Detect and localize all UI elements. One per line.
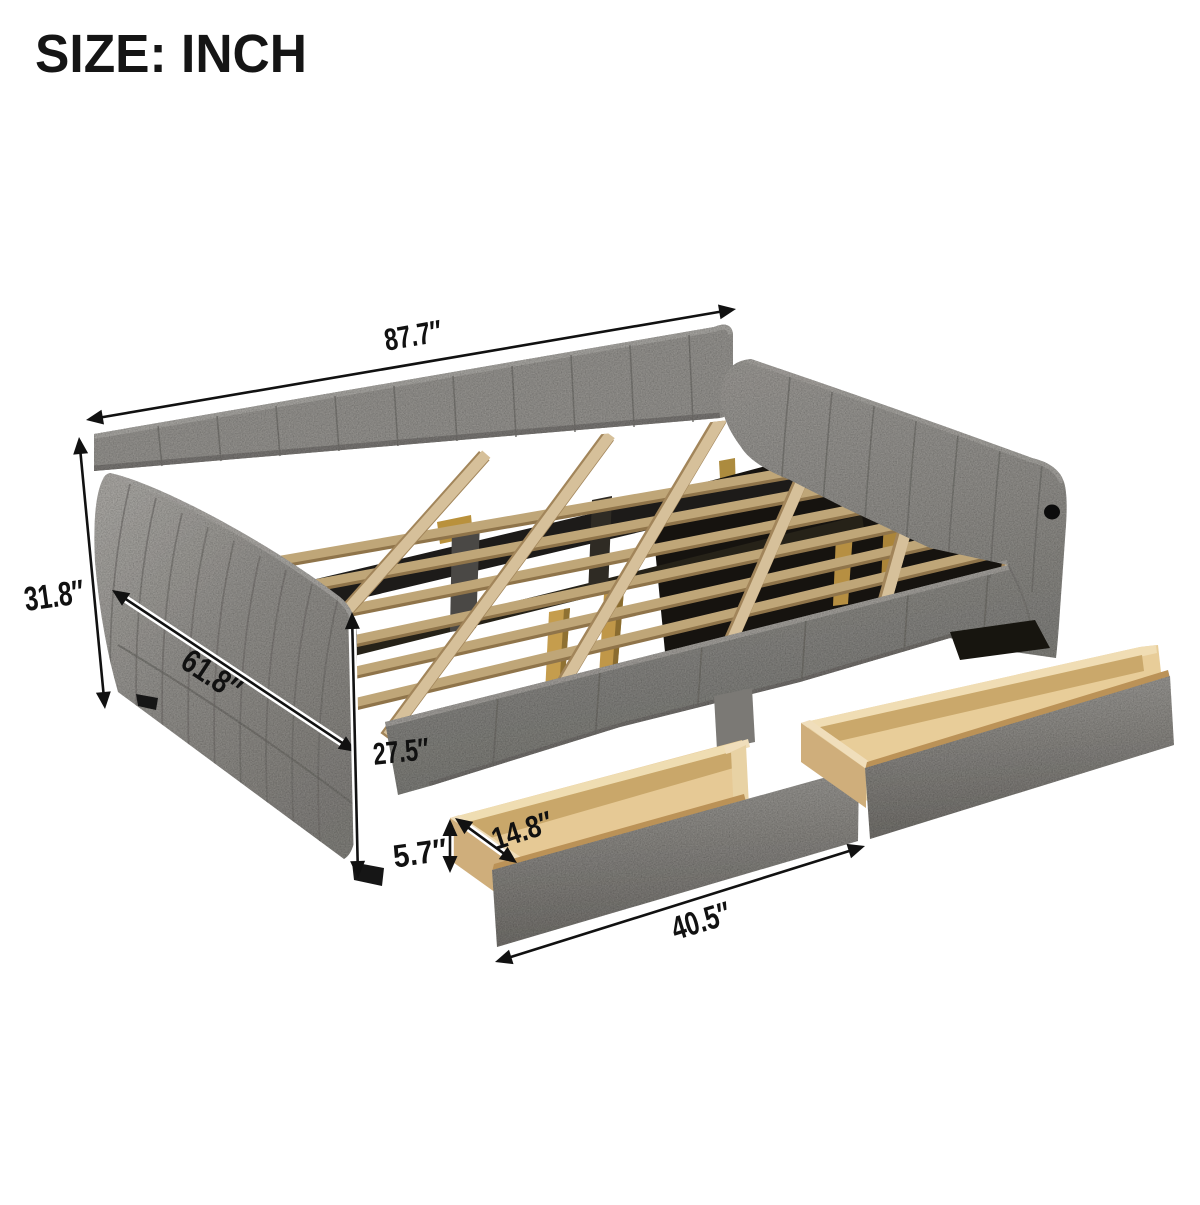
svg-text:27.5″: 27.5″	[371, 731, 430, 772]
svg-text:5.7″: 5.7″	[391, 831, 449, 874]
svg-text:SIZE: INCH: SIZE: INCH	[35, 24, 307, 84]
